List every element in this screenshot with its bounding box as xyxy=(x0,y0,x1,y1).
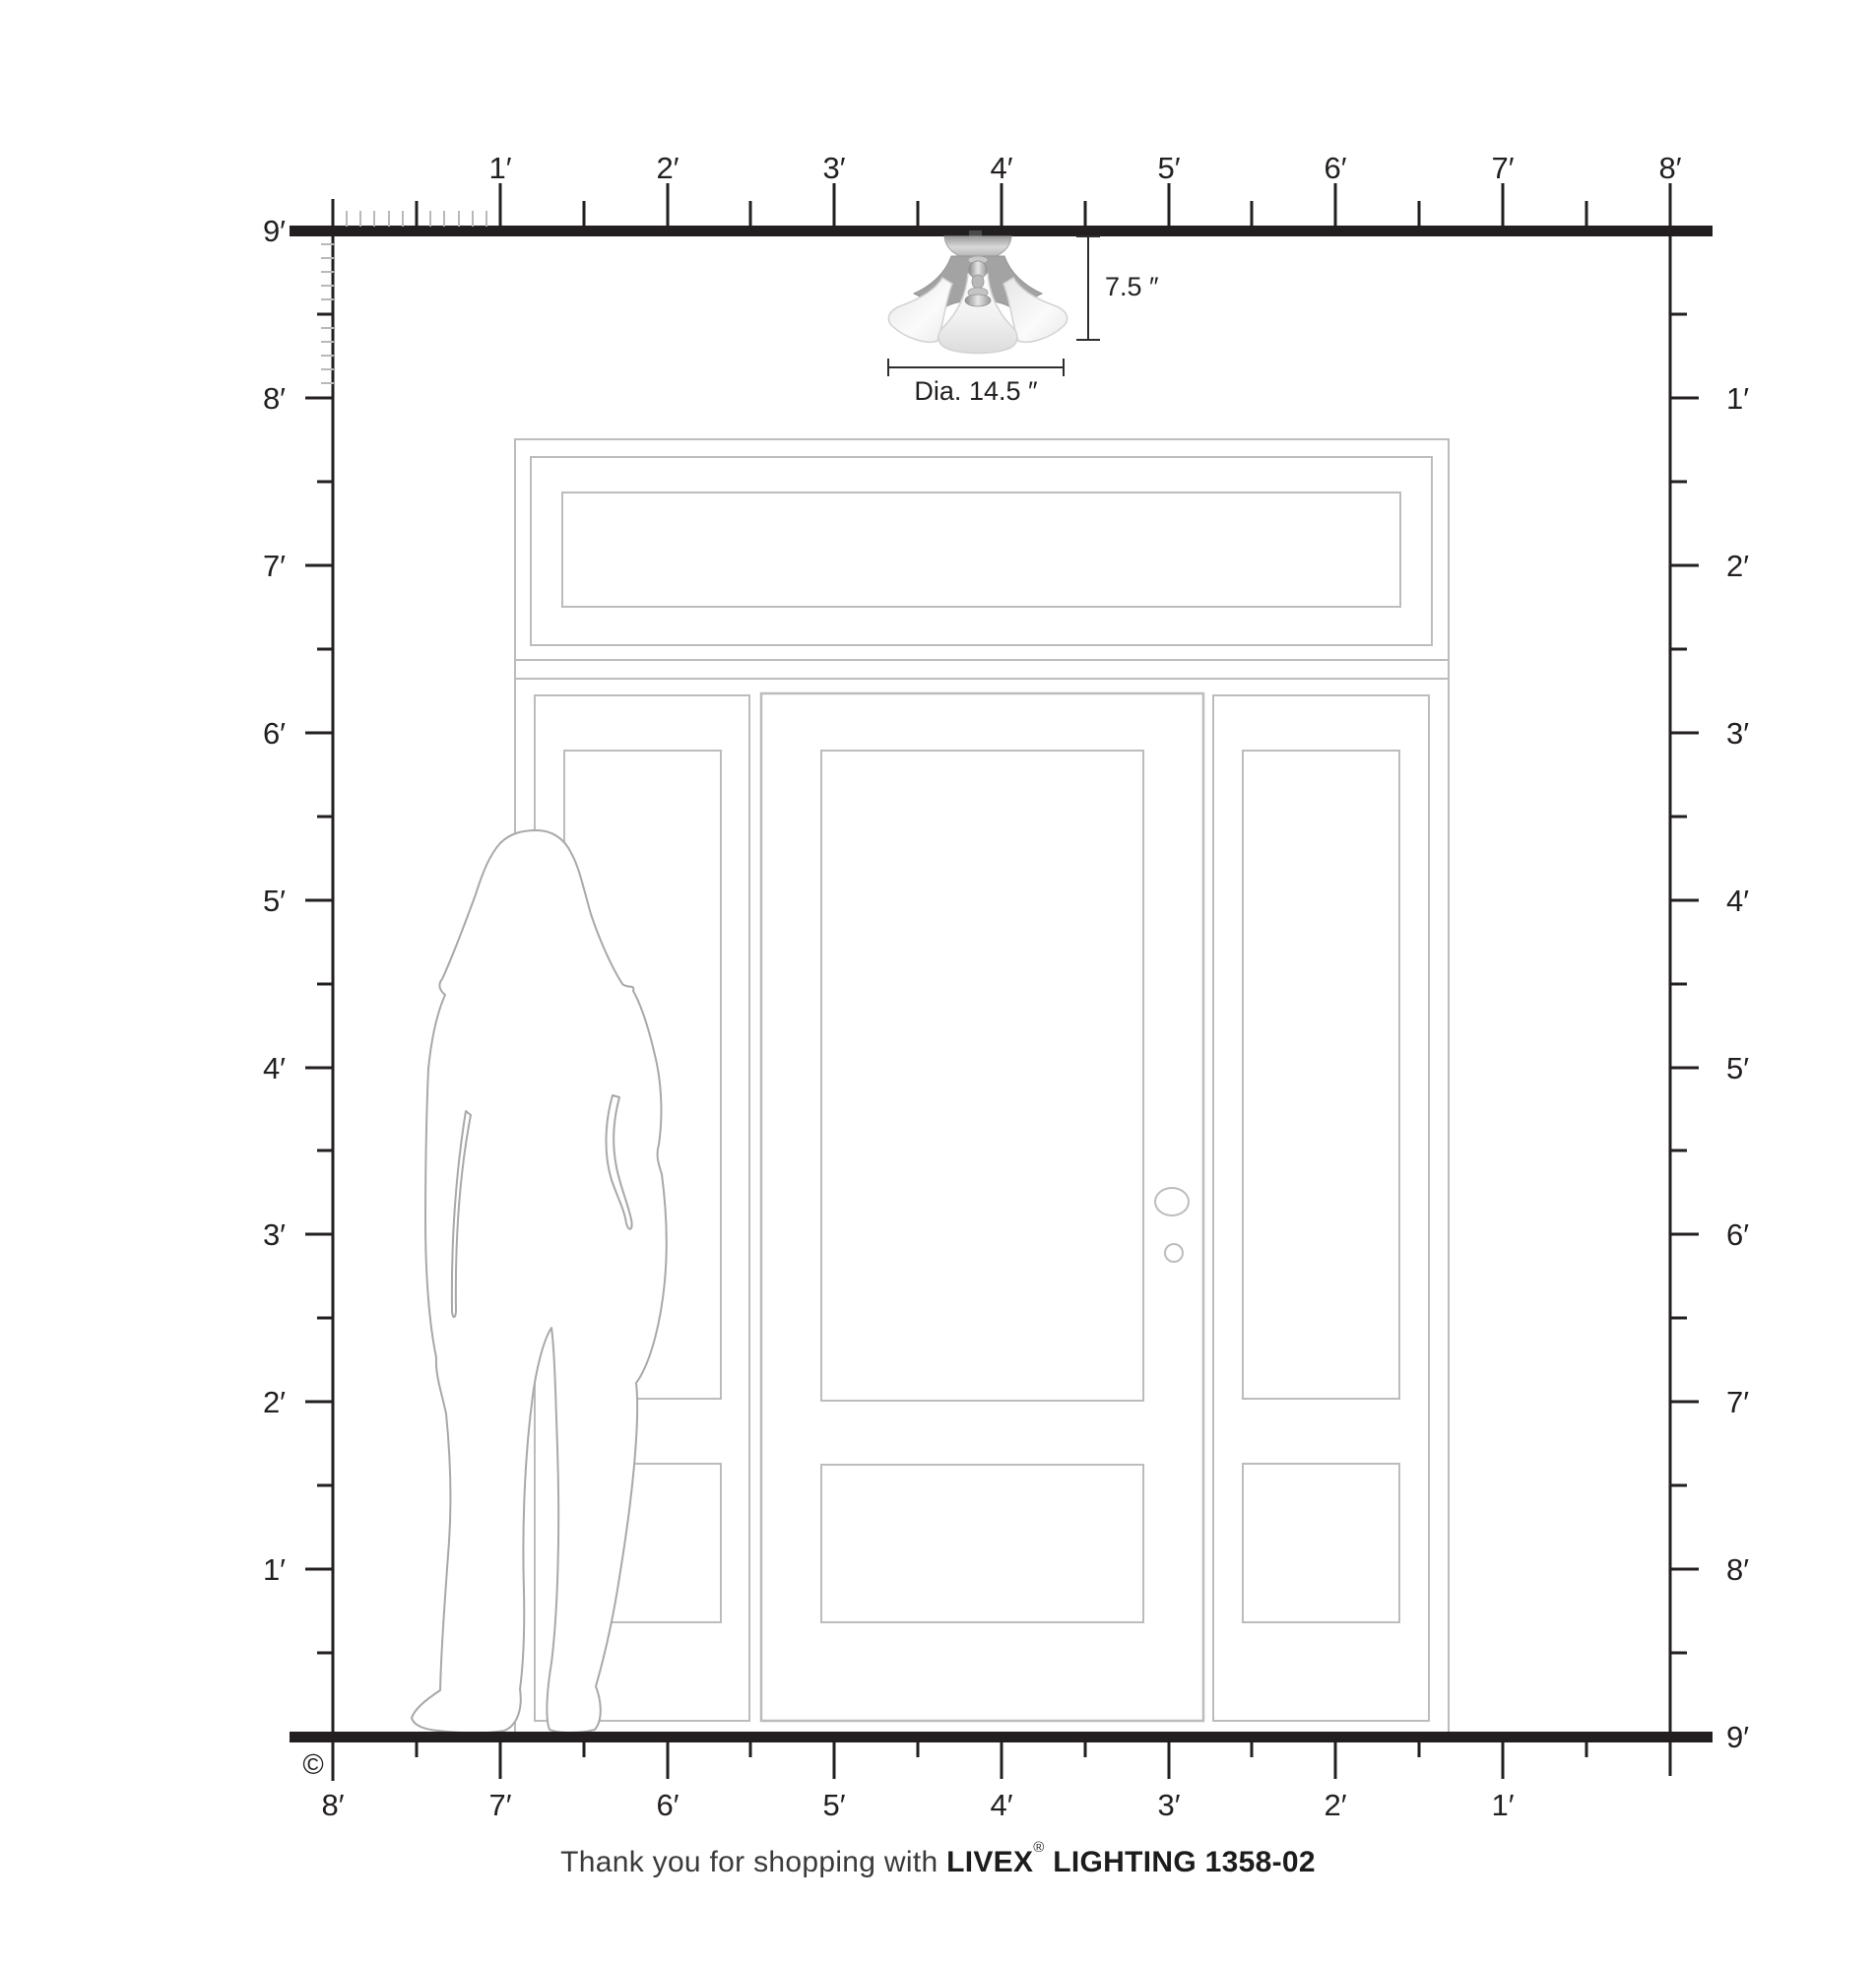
bottom-ruler-labels: 8′ 7′ 6′ 5′ 4′ 3′ 2′ 1′ xyxy=(321,1788,1514,1822)
left-ruler-label: 4′ xyxy=(263,1051,286,1085)
top-ruler-label: 1′ xyxy=(488,151,511,185)
top-ruler-label: 8′ xyxy=(1658,151,1681,185)
bottom-ruler-label: 8′ xyxy=(321,1788,344,1822)
right-half-foot-ticks xyxy=(1671,314,1687,1653)
bottom-ruler-label: 1′ xyxy=(1491,1788,1514,1822)
diameter-dimension xyxy=(888,359,1064,376)
caption-brand: LIVEX xyxy=(946,1846,1033,1878)
top-ruler-label: 5′ xyxy=(1157,151,1180,185)
bottom-ruler-label: 4′ xyxy=(990,1788,1012,1822)
right-ruler-label: 8′ xyxy=(1726,1552,1749,1587)
right-ruler-label: 6′ xyxy=(1726,1217,1749,1252)
right-ruler-label: 7′ xyxy=(1726,1385,1749,1419)
top-ruler-label: 7′ xyxy=(1491,151,1514,185)
registered-trademark-symbol: ® xyxy=(1033,1839,1044,1856)
bottom-ruler-label: 6′ xyxy=(656,1788,679,1822)
left-ruler-label: 7′ xyxy=(263,549,286,583)
bottom-ruler-label: 3′ xyxy=(1157,1788,1180,1822)
bottom-ruler-label: 2′ xyxy=(1324,1788,1346,1822)
right-ruler-label: 1′ xyxy=(1726,381,1749,416)
height-dimension-label: 7.5 ″ xyxy=(1105,272,1159,301)
left-half-foot-ticks xyxy=(317,314,333,1653)
left-ruler-label: 2′ xyxy=(263,1385,286,1419)
door-lower-panel xyxy=(821,1465,1143,1622)
right-ruler-label: 9′ xyxy=(1726,1720,1749,1754)
bottom-ruler-ticks xyxy=(333,1742,1586,1779)
diameter-dimension-line xyxy=(888,359,1064,376)
left-ruler-label: 6′ xyxy=(263,716,286,751)
copyright-symbol: © xyxy=(302,1749,323,1781)
left-ruler-label: 3′ xyxy=(263,1217,286,1252)
left-ruler-label: 8′ xyxy=(263,381,286,416)
bottom-ruler-label: 7′ xyxy=(488,1788,511,1822)
top-ruler-label: 6′ xyxy=(1324,151,1346,185)
top-ruler-ticks xyxy=(347,183,1670,227)
left-ruler-label: 5′ xyxy=(263,884,286,918)
ceiling-light-fixture xyxy=(888,230,1067,354)
transom-frame xyxy=(531,457,1432,645)
height-dimension xyxy=(1076,236,1100,340)
top-ruler-label: 2′ xyxy=(656,151,679,185)
door-main-panel xyxy=(821,751,1143,1401)
transom-sill xyxy=(515,660,1449,679)
door-keyhole xyxy=(1165,1244,1183,1262)
ceiling-line xyxy=(290,226,1713,236)
door-leaf xyxy=(761,693,1203,1721)
left-ruler-labels: 9′ 8′ 7′ 6′ 5′ 4′ 3′ 2′ 1′ xyxy=(263,214,286,1587)
woman-silhouette xyxy=(412,830,667,1733)
top-ruler-labels: 1′ 2′ 3′ 4′ 5′ 6′ 7′ 8′ xyxy=(488,151,1681,185)
left-ruler-label: 1′ xyxy=(263,1552,286,1587)
right-sidelight-lower-panel xyxy=(1243,1464,1399,1622)
footer-caption: Thank you for shopping with LIVEX® LIGHT… xyxy=(0,1846,1876,1879)
door-knob xyxy=(1155,1188,1189,1215)
right-ruler-label: 5′ xyxy=(1726,1051,1749,1085)
right-sidelight-tall-panel xyxy=(1243,751,1399,1399)
right-ruler-label: 2′ xyxy=(1726,549,1749,583)
scale-diagram: 1′ 2′ 3′ 4′ 5′ 6′ 7′ 8′ 8′ 7′ 6′ 5′ 4′ 3… xyxy=(0,0,1876,1970)
height-dimension-line xyxy=(1076,236,1100,340)
right-ruler-label: 3′ xyxy=(1726,716,1749,751)
left-ruler-ticks xyxy=(305,244,334,1653)
right-ruler-label: 4′ xyxy=(1726,884,1749,918)
caption-model-number: LIGHTING 1358-02 xyxy=(1045,1846,1316,1878)
top-ruler-label: 3′ xyxy=(822,151,845,185)
caption-thanks-text: Thank you for shopping with xyxy=(560,1846,946,1878)
diagram-canvas: 1′ 2′ 3′ 4′ 5′ 6′ 7′ 8′ 8′ 7′ 6′ 5′ 4′ 3… xyxy=(0,0,1876,1970)
diameter-dimension-label: Dia. 14.5 ″ xyxy=(914,376,1038,406)
right-ruler-labels: 1′ 2′ 3′ 4′ 5′ 6′ 7′ 8′ 9′ xyxy=(1726,381,1749,1754)
bottom-ruler-label: 5′ xyxy=(822,1788,845,1822)
left-ruler-label: 9′ xyxy=(263,214,286,248)
top-ruler-label: 4′ xyxy=(990,151,1012,185)
right-sidelight xyxy=(1213,695,1429,1721)
floor-line xyxy=(290,1732,1713,1742)
right-ruler-ticks xyxy=(1671,314,1699,1653)
woman-outline xyxy=(412,830,667,1733)
transom-glass xyxy=(562,492,1400,607)
